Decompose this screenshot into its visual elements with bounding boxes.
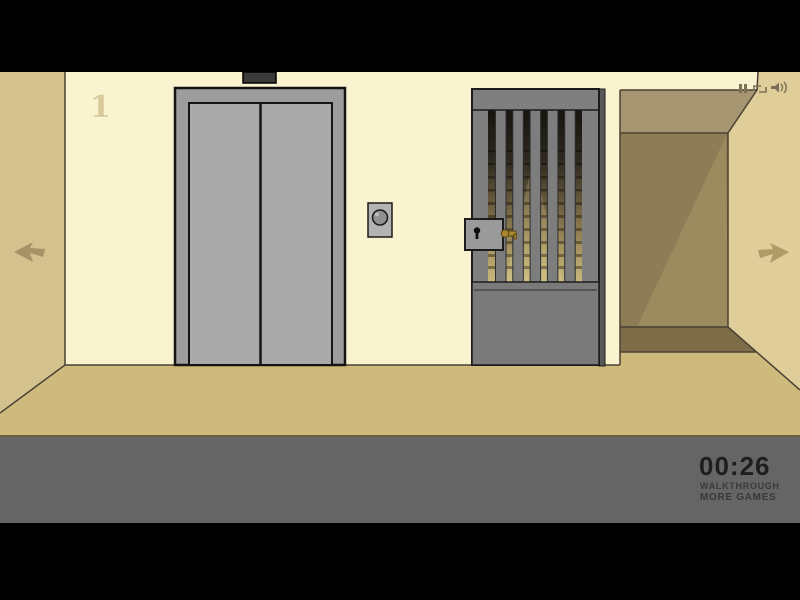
prison-gate[interactable] xyxy=(465,89,605,366)
bottom-ui-band xyxy=(0,437,800,523)
gate-bottom-panel xyxy=(472,282,599,365)
wall-floor-number: 1 xyxy=(90,90,111,125)
lock-plate[interactable] xyxy=(465,219,503,250)
elevator[interactable] xyxy=(175,72,345,365)
key-tooth xyxy=(514,235,517,240)
elevator-call-button[interactable] xyxy=(368,203,392,237)
walkthrough-link[interactable]: WALKTHROUGH xyxy=(700,481,780,491)
gate-lock[interactable] xyxy=(465,219,503,250)
countdown-timer: 00:26 xyxy=(699,451,771,482)
call-button-icon[interactable] xyxy=(373,210,388,225)
keyhole-slot xyxy=(476,232,479,239)
more-games-link[interactable]: MORE GAMES xyxy=(700,492,776,503)
call-button-highlight xyxy=(375,213,379,217)
game-stage: 1 00:26 WALKTHROUGH MORE GAMES xyxy=(0,0,800,600)
key-head xyxy=(501,230,509,238)
elevator-floor-indicator xyxy=(243,72,276,83)
room-scene xyxy=(0,0,800,600)
